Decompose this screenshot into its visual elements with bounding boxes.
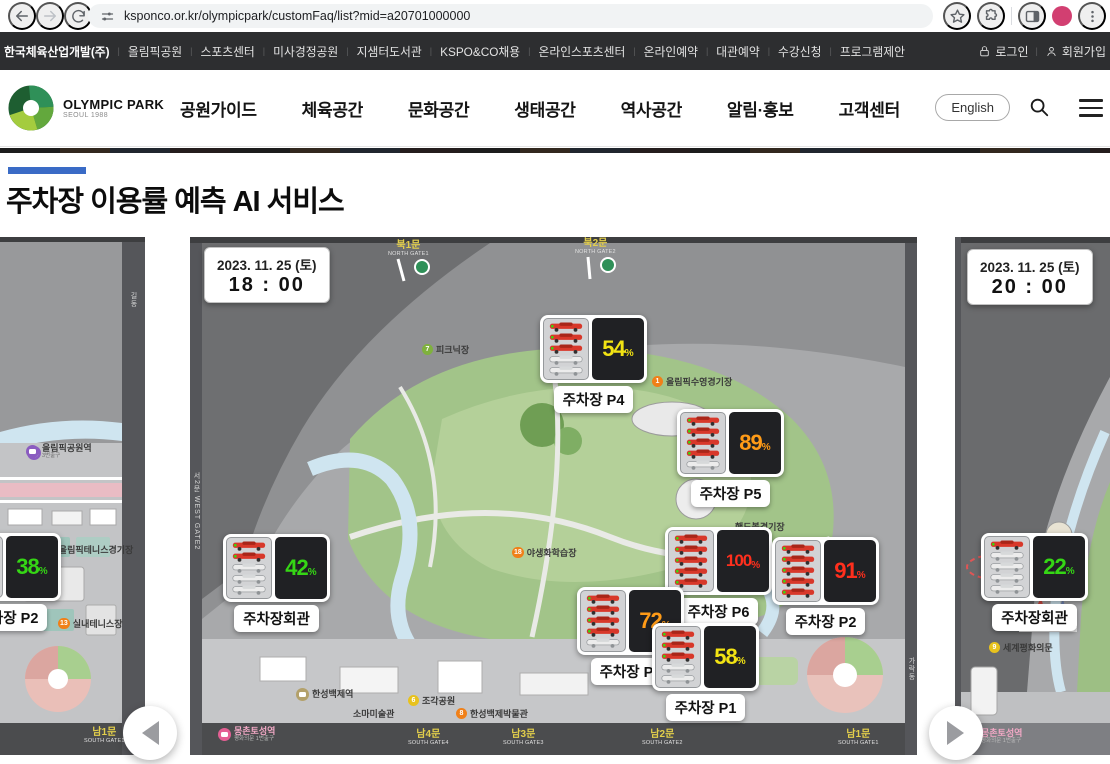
utility-separator: | (346, 46, 348, 56)
car-icon (672, 556, 710, 566)
utility-separator: | (633, 46, 635, 56)
car-icon (779, 544, 817, 554)
utility-separator: | (118, 46, 120, 56)
arrow-right-icon (945, 720, 967, 746)
poi-name: 세계평화의문 (1003, 641, 1053, 654)
gate-name: 북1문 (396, 240, 420, 251)
utility-link[interactable]: 온라인스포츠센터 (538, 43, 625, 60)
utility-separator: | (1035, 46, 1037, 56)
percent-unit: % (751, 560, 760, 571)
logo-title: OLYMPIC PARK (63, 97, 164, 112)
gate-name-en: SOUTH GATE1 (84, 738, 125, 744)
car-icon (779, 588, 817, 598)
nav-item[interactable]: 생태공간 (514, 96, 575, 121)
map-frame-street-label: 서2문 WEST GATE2 (191, 472, 201, 550)
map-illustration-previous (0, 237, 145, 755)
gate-label: 북1문NORTH GATE1 (388, 240, 429, 257)
title-accent-bar (8, 167, 86, 174)
parking-marker: 42%주차장회관 (223, 534, 330, 632)
car-icon (230, 574, 268, 584)
parking-lot-name: 주차장회관 (234, 605, 319, 632)
carousel-next-arrow[interactable] (929, 706, 983, 760)
occupancy-percent: 100% (717, 530, 769, 592)
subway-station-icon (26, 445, 39, 458)
parking-marker-box: 89% (677, 409, 784, 477)
poi-name: 실내테니스장 (73, 617, 123, 630)
car-icon (547, 366, 585, 376)
poi-number-dot: 18 (512, 547, 524, 558)
parking-marker-box: 42% (223, 534, 330, 602)
gate-name-en: SOUTH GATE1 (838, 740, 879, 746)
car-icon (659, 641, 697, 651)
occupancy-percent: 91% (824, 540, 876, 602)
car-icon (672, 567, 710, 577)
map-frame-street-label: 길동 (128, 292, 138, 308)
profile-avatar[interactable] (1052, 6, 1072, 26)
banner-strip (0, 148, 1110, 153)
utility-bar: 한국체육산업개발(주)|올림픽공원|스포츠센터|미사경정공원|지샘터도서관|KS… (0, 32, 1110, 70)
car-icon (584, 605, 622, 615)
station-exit: 평화의문 1번출구 (981, 738, 1022, 744)
parking-map-carousel: 38%주차장 P2올림픽공원역3번출구14올림픽테니스경기장13실내테니스장남1… (0, 237, 1110, 755)
map-panel-current: 2023. 11. 25 (토) 18 : 00 54%주차장 P489%주차장… (190, 237, 917, 755)
lock-icon (978, 45, 991, 58)
gate-name: 남1문 (846, 729, 870, 740)
station-label: 한성백제역 (296, 688, 353, 701)
utility-separator: | (263, 46, 265, 56)
gate-name-en: SOUTH GATE4 (408, 740, 449, 746)
nav-item[interactable]: 체육공간 (302, 96, 363, 121)
poi-name: 조각공원 (422, 694, 455, 707)
occupancy-percent: 89% (729, 412, 781, 474)
percent-value: 42 (285, 555, 307, 581)
gate-name-en: NORTH GATE1 (388, 251, 429, 257)
extensions-icon[interactable] (977, 2, 1005, 30)
parking-marker-box: 58% (652, 623, 759, 691)
menu-hamburger-icon[interactable] (1079, 99, 1103, 117)
parking-marker-box: 38% (0, 533, 61, 601)
poi-label: 6조각공원 (408, 694, 455, 707)
parking-marker-box: 100% (665, 527, 772, 595)
map-frame-street-label: 가락동 (906, 657, 916, 681)
car-icon (779, 566, 817, 576)
occupancy-percent: 22% (1033, 536, 1085, 598)
parking-marker: 58%주차장 P1 (652, 623, 759, 721)
main-nav: 공원가이드체육공간문화공간생태공간역사공간알림·홍보고객센터 (180, 70, 900, 147)
car-icon (684, 427, 722, 437)
map-panel-next: 2023. 11. 25 (토) 20 : 00 22%주차장회관9세계평화의문… (955, 237, 1110, 755)
utility-separator: | (706, 46, 708, 56)
occupancy-cars-icon (984, 536, 1030, 598)
carousel-prev-arrow[interactable] (123, 706, 177, 760)
utility-link[interactable]: 지샘터도서관 (357, 43, 422, 60)
utility-link[interactable]: 온라인예약 (644, 43, 698, 60)
car-icon (659, 663, 697, 673)
parking-marker-box: 22% (981, 533, 1088, 601)
utility-link[interactable]: 미사경정공원 (273, 43, 338, 60)
gate-name-en: SOUTH GATE2 (642, 740, 683, 746)
subway-station-icon (296, 688, 309, 701)
browser-forward-button[interactable] (36, 2, 64, 30)
parking-marker-box: 91% (772, 537, 879, 605)
car-icon (672, 534, 710, 544)
percent-unit: % (1066, 566, 1075, 577)
login-link[interactable]: 로그인 (978, 43, 1028, 60)
gate-label: 남4문SOUTH GATE4 (408, 729, 449, 746)
parking-lot-name: 주차장 P5 (691, 480, 771, 507)
parking-lot-name: 주차장 P6 (679, 598, 759, 625)
utility-separator: | (768, 46, 770, 56)
parking-marker: 54%주차장 P4 (540, 315, 647, 413)
occupancy-cars-icon (226, 537, 272, 599)
utility-link[interactable]: 스포츠센터 (201, 43, 255, 60)
parking-marker: 89%주차장 P5 (677, 409, 784, 507)
parking-lot-name: 주차장 P2 (0, 604, 47, 631)
poi-number-dot: 8 (456, 708, 467, 719)
car-icon (779, 555, 817, 565)
utility-link[interactable]: 프로그램제안 (840, 43, 905, 60)
gate-label: 북2문NORTH GATE2 (575, 238, 616, 255)
car-icon (659, 652, 697, 662)
logo-subtitle: SEOUL 1988 (63, 112, 164, 119)
car-icon (584, 594, 622, 604)
percent-value: 22 (1043, 554, 1065, 580)
utility-separator: | (829, 46, 831, 56)
gate-name-en: NORTH GATE2 (575, 249, 616, 255)
station-name: 몽촌토성역 (234, 726, 275, 736)
utility-link[interactable]: KSPO&CO채용 (440, 43, 520, 60)
browser-toolbar: ksponco.or.kr/olympicpark/customFaq/list… (0, 0, 1110, 32)
join-label: 회원가입 (1062, 43, 1106, 60)
gate-label: 남1문SOUTH GATE1 (84, 727, 125, 744)
percent-unit: % (737, 656, 746, 667)
map-panel-previous: 38%주차장 P2올림픽공원역3번출구14올림픽테니스경기장13실내테니스장남1… (0, 237, 145, 755)
occupancy-cars-icon (655, 626, 701, 688)
occupancy-percent: 58% (704, 626, 756, 688)
car-icon (230, 585, 268, 595)
parking-lot-name: 주차장 P2 (786, 608, 866, 635)
car-icon (988, 584, 1026, 594)
poi-label: 7피크닉장 (422, 343, 469, 356)
gate-name: 북2문 (583, 238, 607, 249)
gate-name: 남2문 (650, 729, 674, 740)
browser-back-button[interactable] (8, 2, 36, 30)
english-button[interactable]: English (935, 94, 1010, 121)
utility-link[interactable]: 올림픽공원 (128, 43, 182, 60)
occupancy-percent: 42% (275, 537, 327, 599)
poi-name: 피크닉장 (436, 343, 469, 356)
utility-link[interactable]: 한국체육산업개발(주) (4, 43, 110, 60)
station-name: 몽촌토성역 (981, 728, 1022, 738)
poi-name: 소마미술관 (353, 707, 394, 720)
utility-link[interactable]: 대관예약 (716, 43, 759, 60)
utility-link[interactable]: 수강신청 (778, 43, 821, 60)
utility-separator: | (528, 46, 530, 56)
nav-item[interactable]: 역사공간 (621, 96, 682, 121)
car-icon (584, 616, 622, 626)
arrow-left-icon (139, 720, 161, 746)
parking-lot-name: 주차장 P1 (666, 694, 746, 721)
station-label: 몽촌토성역평화의문 1번출구 (218, 726, 275, 743)
forecast-date: 2023. 11. 25 (토) (980, 256, 1080, 276)
gate-label: 남3문SOUTH GATE3 (503, 729, 544, 746)
poi-name: 한성백제박물관 (470, 707, 528, 720)
poi-name: 야생화학습장 (527, 546, 577, 559)
utility-account: 로그인 | 회원가입 (978, 43, 1106, 60)
percent-value: 100 (726, 551, 751, 571)
parking-marker-box: 54% (540, 315, 647, 383)
subway-station-icon (218, 728, 231, 741)
poi-label: 1올림픽수영경기장 (652, 375, 732, 388)
percent-unit: % (762, 442, 771, 453)
site-header: OLYMPIC PARK SEOUL 1988 공원가이드체육공간문화공간생태공… (0, 70, 1110, 147)
car-icon (672, 545, 710, 555)
poi-name: 올림픽테니스경기장 (59, 543, 134, 556)
percent-unit: % (625, 348, 634, 359)
car-icon (584, 627, 622, 637)
car-icon (547, 333, 585, 343)
percent-value: 89 (739, 430, 761, 456)
forecast-date: 2023. 11. 25 (토) (217, 254, 317, 274)
browser-menu-icon[interactable] (1078, 2, 1106, 30)
percent-value: 58 (714, 644, 736, 670)
nav-item[interactable]: 알림·홍보 (727, 96, 794, 121)
poi-number-dot: 6 (408, 695, 419, 706)
percent-unit: % (308, 567, 317, 578)
gate-name: 남3문 (511, 729, 535, 740)
car-icon (230, 563, 268, 573)
forecast-datetime-box: 2023. 11. 25 (토) 20 : 00 (967, 249, 1093, 305)
parking-marker: 38%주차장 P2 (0, 533, 61, 631)
forecast-time: 20 : 00 (980, 276, 1080, 299)
car-icon (547, 344, 585, 354)
search-icon[interactable] (1028, 96, 1050, 121)
car-icon (988, 573, 1026, 583)
occupancy-cars-icon (775, 540, 821, 602)
utility-nav: 한국체육산업개발(주)|올림픽공원|스포츠센터|미사경정공원|지샘터도서관|KS… (4, 43, 905, 60)
percent-value: 38 (16, 554, 38, 580)
occupancy-percent: 38% (6, 536, 58, 598)
parking-lot-name: 주차장 P4 (554, 386, 634, 413)
occupancy-cars-icon (668, 530, 714, 592)
poi-label: 8한성백제박물관 (456, 707, 528, 720)
occupancy-cars-icon (0, 536, 3, 598)
car-icon (659, 630, 697, 640)
percent-value: 91 (834, 558, 856, 584)
person-icon (1045, 45, 1058, 58)
gate-label: 남1문SOUTH GATE1 (838, 729, 879, 746)
nav-item[interactable]: 고객센터 (839, 96, 900, 121)
address-bar[interactable]: ksponco.or.kr/olympicpark/customFaq/list… (88, 4, 933, 28)
occupancy-cars-icon (543, 318, 589, 380)
gate-label: 남2문SOUTH GATE2 (642, 729, 683, 746)
nav-item[interactable]: 문화공간 (408, 96, 469, 121)
car-icon (684, 449, 722, 459)
car-icon (988, 551, 1026, 561)
login-label: 로그인 (995, 43, 1028, 60)
poi-number-dot: 7 (422, 344, 433, 355)
occupancy-cars-icon (580, 590, 626, 652)
car-icon (988, 562, 1026, 572)
parking-marker: 91%주차장 P2 (772, 537, 879, 635)
olympic-park-parking-page: { "browser": { "url": "ksponco.or.kr/oly… (0, 0, 1110, 764)
gate-name: 남1문 (92, 727, 116, 738)
gate-name-en: SOUTH GATE3 (503, 740, 544, 746)
poi-number-dot: 9 (989, 642, 1000, 653)
poi-label: 9세계평화의문 (989, 641, 1053, 654)
car-icon (230, 541, 268, 551)
station-exit: 3번출구 (42, 453, 92, 459)
station-name: 올림픽공원역 (42, 443, 92, 453)
bookmark-star-icon[interactable] (943, 2, 971, 30)
car-icon (584, 638, 622, 648)
poi-label: 13실내테니스장 (58, 617, 122, 630)
poi-label: 소마미술관 (353, 707, 394, 720)
site-info-icon[interactable] (100, 9, 115, 24)
car-icon (779, 577, 817, 587)
utility-separator: | (430, 46, 432, 56)
parking-lot-name: 주차장회관 (992, 604, 1077, 631)
page-title: 주차장 이용률 예측 AI 서비스 (6, 178, 344, 220)
olympic-park-logo[interactable]: OLYMPIC PARK SEOUL 1988 (8, 85, 164, 131)
car-icon (230, 552, 268, 562)
toolbar-divider (1011, 7, 1012, 25)
olympic-park-logo-icon (8, 85, 54, 131)
car-icon (684, 438, 722, 448)
poi-label: 18야생화학습장 (512, 546, 576, 559)
utility-separator: | (190, 46, 192, 56)
percent-unit: % (857, 570, 866, 581)
map-illustration-next (955, 237, 1110, 755)
percent-value: 54 (602, 336, 624, 362)
station-name: 한성백제역 (312, 689, 353, 699)
gate-name: 남4문 (416, 729, 440, 740)
poi-number-dot: 1 (652, 376, 663, 387)
url-text: ksponco.or.kr/olympicpark/customFaq/list… (124, 9, 470, 23)
car-icon (988, 540, 1026, 550)
join-link[interactable]: 회원가입 (1045, 43, 1106, 60)
car-icon (547, 355, 585, 365)
nav-item[interactable]: 공원가이드 (180, 96, 257, 121)
percent-unit: % (39, 566, 48, 577)
car-icon (684, 416, 722, 426)
forecast-datetime-box: 2023. 11. 25 (토) 18 : 00 (204, 247, 330, 303)
parking-marker: 22%주차장회관 (981, 533, 1088, 631)
occupancy-cars-icon (680, 412, 726, 474)
car-icon (547, 322, 585, 332)
occupancy-percent: 54% (592, 318, 644, 380)
station-exit: 평화의문 1번출구 (234, 736, 275, 742)
car-icon (659, 674, 697, 684)
side-panel-icon[interactable] (1018, 2, 1046, 30)
forecast-time: 18 : 00 (217, 274, 317, 297)
poi-name: 올림픽수영경기장 (666, 375, 732, 388)
station-label: 올림픽공원역3번출구 (26, 443, 92, 460)
car-icon (684, 460, 722, 470)
